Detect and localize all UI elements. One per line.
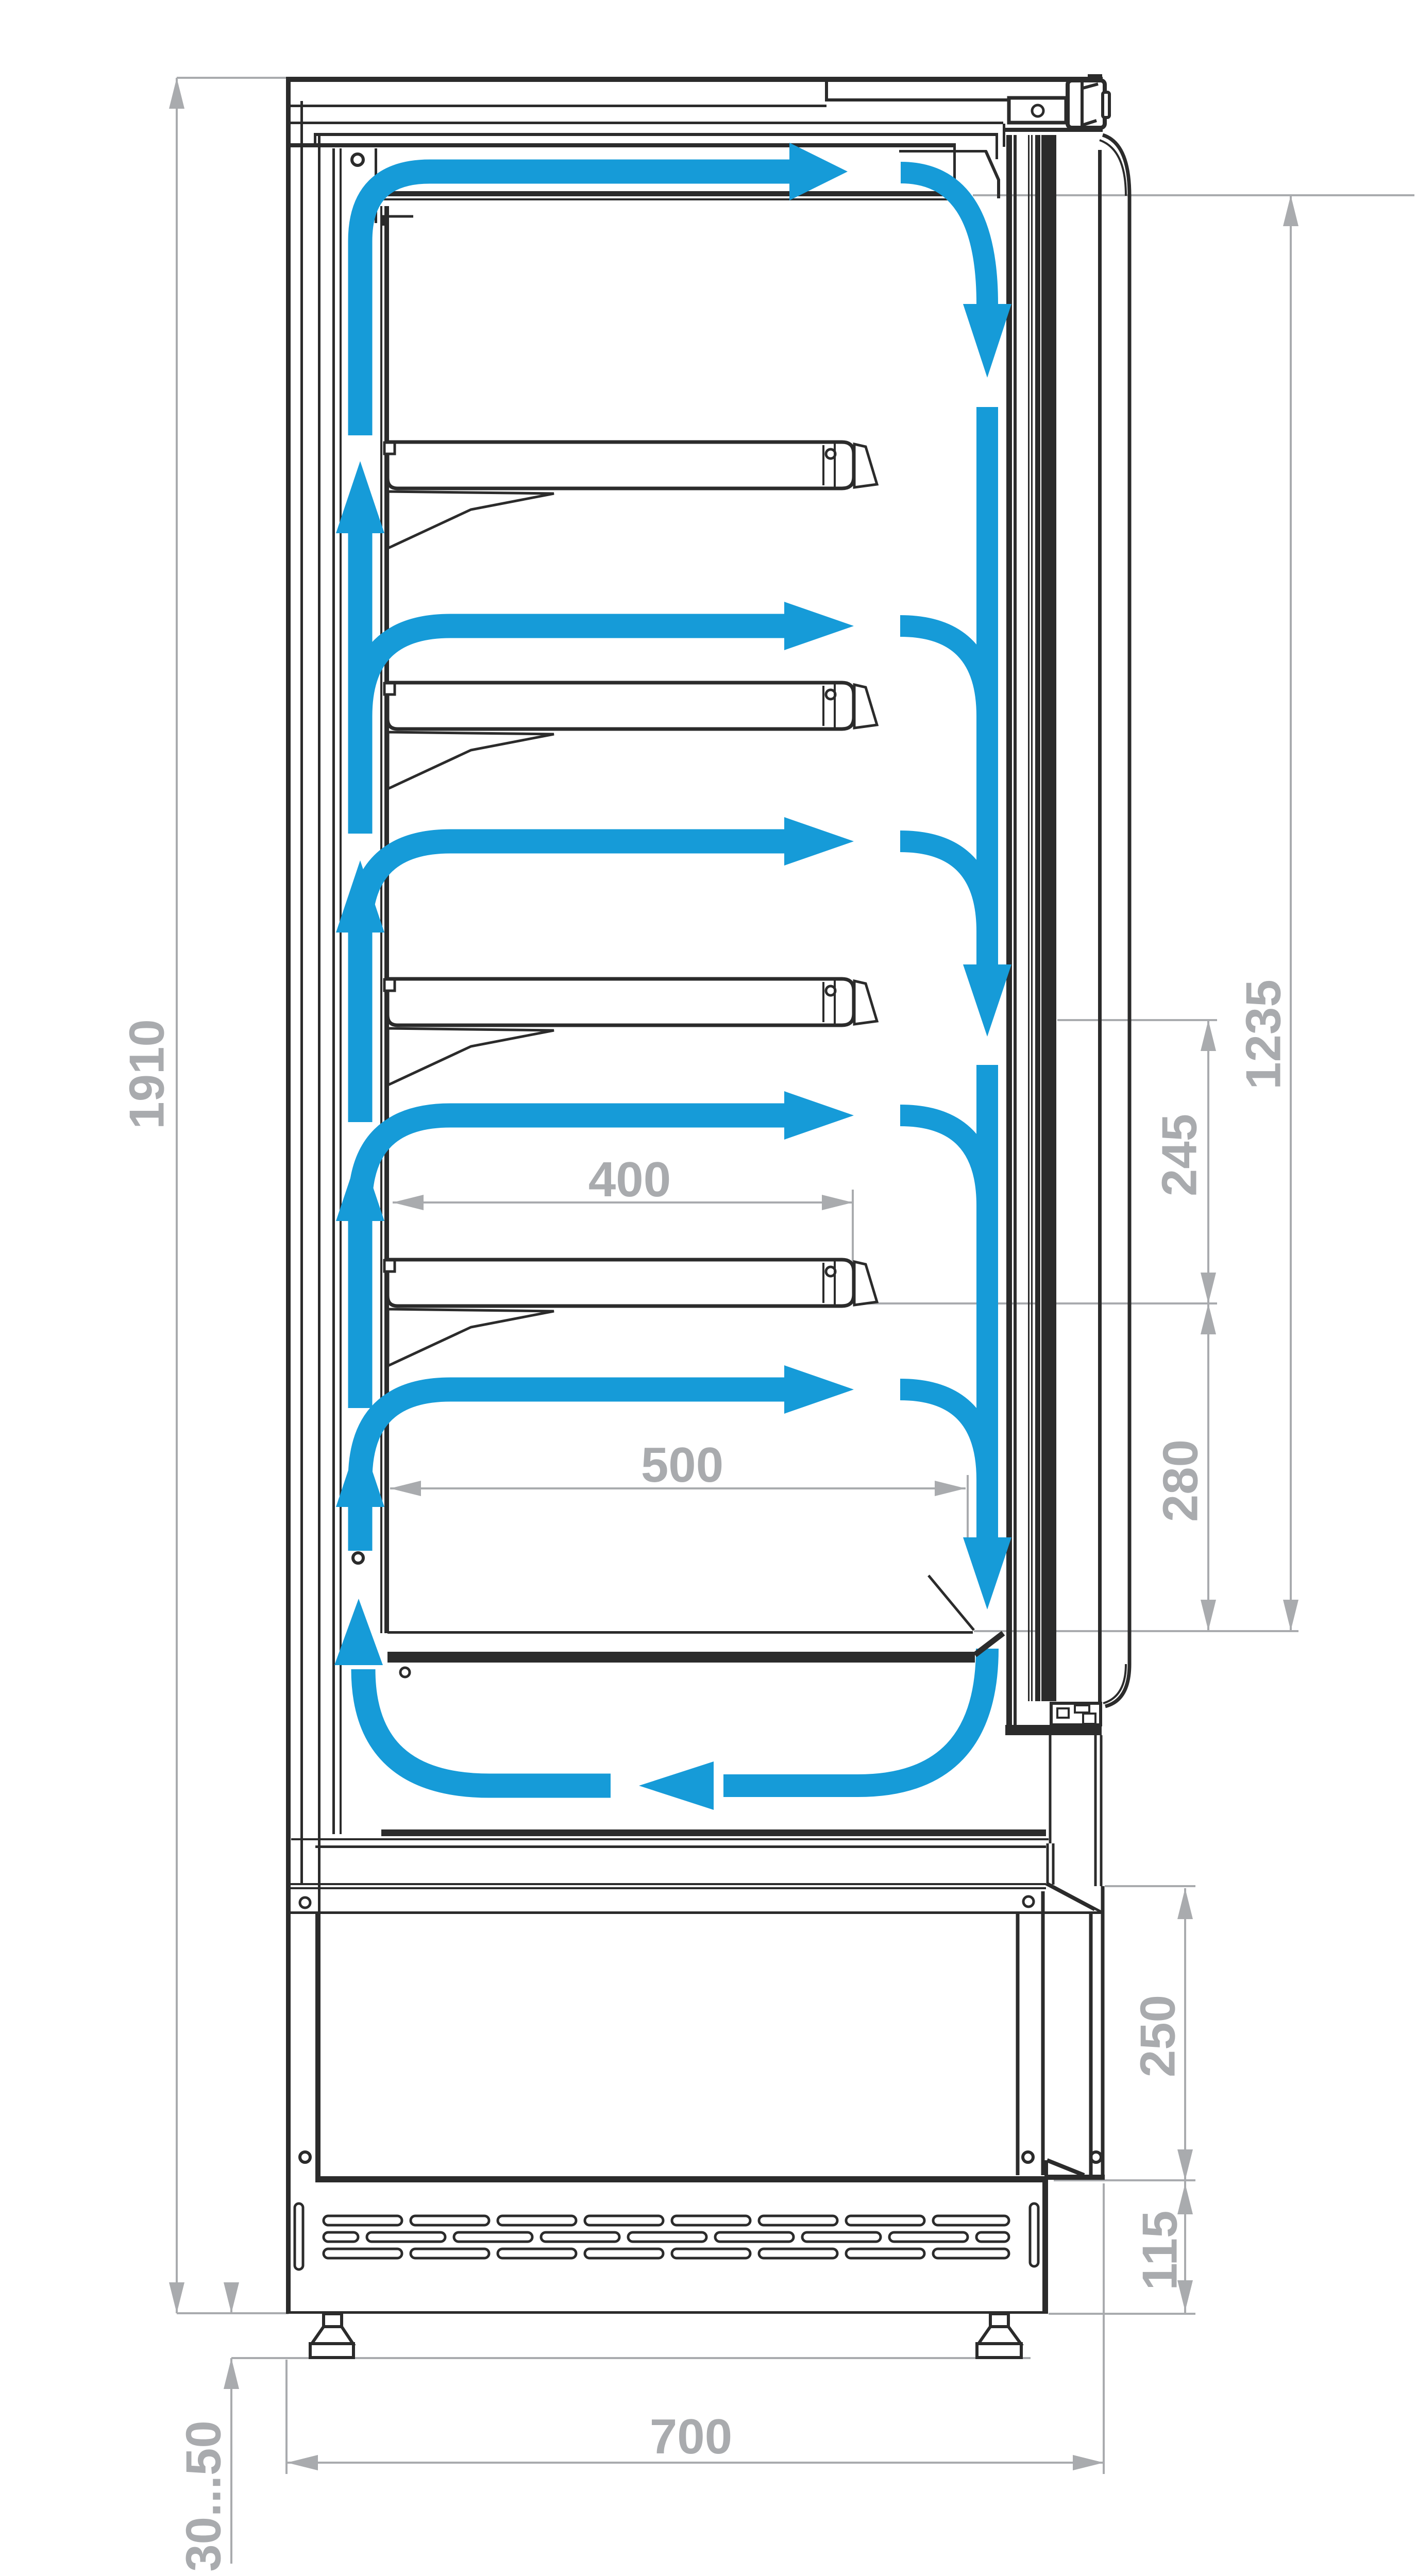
svg-text:245: 245: [1152, 1114, 1207, 1196]
svg-text:700: 700: [650, 2409, 732, 2464]
svg-text:250: 250: [1130, 1995, 1185, 2077]
svg-text:1235: 1235: [1236, 979, 1291, 1090]
svg-text:30...50: 30...50: [176, 2420, 231, 2572]
svg-text:115: 115: [1132, 2211, 1187, 2291]
svg-text:500: 500: [641, 1437, 723, 1493]
svg-text:1910: 1910: [119, 1019, 174, 1129]
svg-text:400: 400: [588, 1152, 671, 1207]
svg-text:280: 280: [1153, 1439, 1208, 1522]
